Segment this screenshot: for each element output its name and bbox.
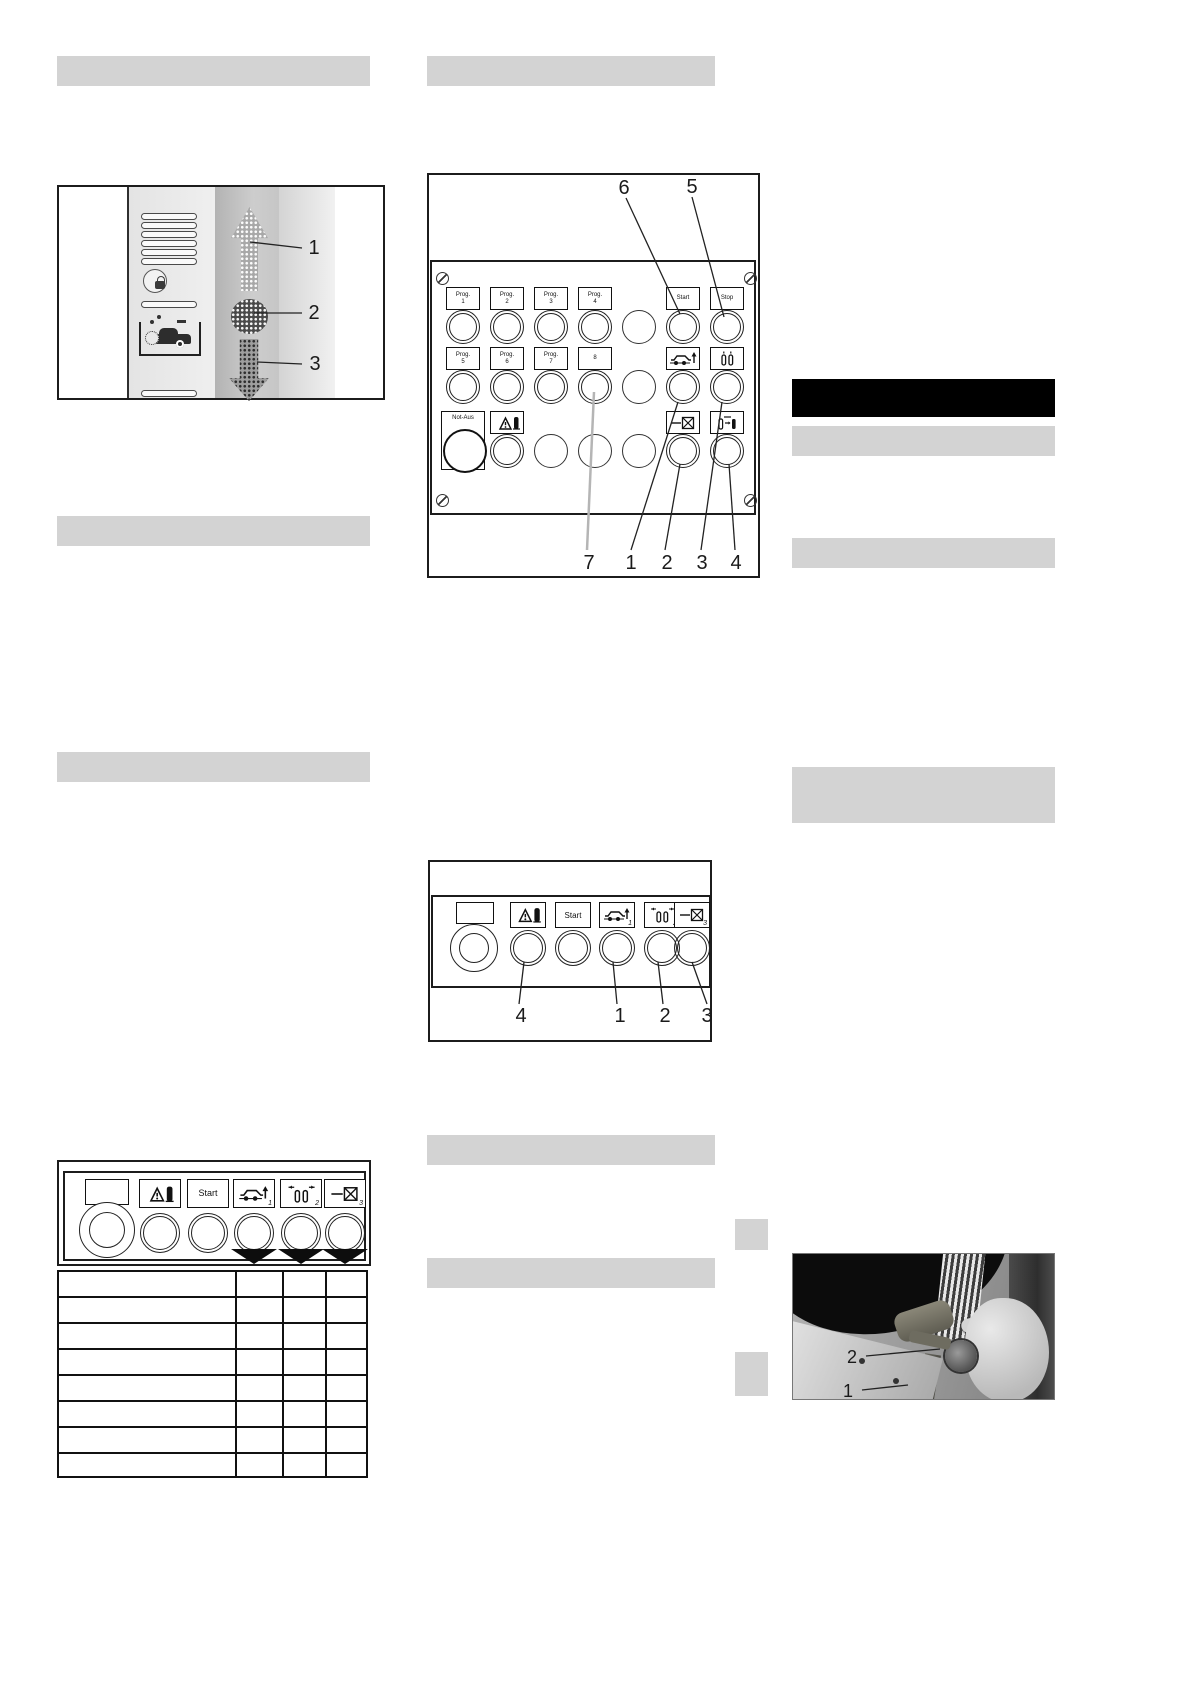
table-col-line [282, 1272, 284, 1476]
prog3-button [534, 310, 568, 344]
callout-1b: 1 [623, 553, 639, 573]
blank-button [578, 434, 612, 468]
wash-cancel-button [666, 434, 700, 468]
callout-2b: 2 [659, 553, 675, 573]
gantry-position-icon [710, 411, 744, 434]
warning-column-icon [490, 411, 524, 434]
start-label: Start [187, 1179, 229, 1208]
blank-button [622, 310, 656, 344]
vent-slot [141, 249, 197, 256]
callout-1: 1 [306, 238, 322, 258]
start-label: Start [666, 287, 700, 310]
wash-cancel-icon [666, 411, 700, 434]
prog6-button [490, 370, 524, 404]
car-raise-button [666, 370, 700, 404]
heading-bar-black [792, 379, 1055, 417]
heading-bar-mid-1 [427, 56, 715, 86]
wash-cancel-icon: 3 [674, 902, 710, 928]
screw-hole [893, 1378, 899, 1384]
car-wheel [176, 340, 184, 348]
droplet-icon [150, 320, 154, 324]
vent-slot [141, 390, 197, 397]
photo-callout-2: 2 [844, 1347, 860, 1367]
wash-cancel-icon: 3 [324, 1179, 366, 1208]
vent-slot [141, 258, 197, 265]
callout-2: 2 [306, 303, 322, 323]
table-row-line [59, 1452, 366, 1454]
vent-slot [141, 222, 197, 229]
heading-bar-right-2 [792, 538, 1055, 568]
callout-3: 3 [307, 354, 323, 374]
stop-button [710, 310, 744, 344]
start-button [555, 930, 591, 966]
table-col-line [325, 1272, 327, 1476]
margin-stub-2 [735, 1352, 768, 1396]
car-raise-icon: 1 [233, 1179, 275, 1208]
car-raise-button [599, 930, 635, 966]
gantry-pause-icon [710, 347, 744, 370]
table-row-line [59, 1322, 366, 1324]
start-label: Start [555, 902, 591, 928]
icon-subscript: 3 [703, 920, 707, 927]
prog8-button [578, 370, 612, 404]
blank-button [622, 370, 656, 404]
car-raise-button [234, 1213, 274, 1253]
callout-3b: 3 [694, 553, 710, 573]
icon-subscript: 2 [315, 1200, 319, 1207]
start-button [666, 310, 700, 344]
prog7-label: Prog.7 [534, 347, 568, 370]
wash-cancel-button [674, 930, 710, 966]
icon-subscript: 1 [268, 1200, 272, 1207]
car-raise-icon [666, 347, 700, 370]
prog8-label: 8 [578, 347, 612, 370]
heading-bar-mid-3 [427, 1258, 715, 1288]
prog1-label: Prog.1 [446, 287, 480, 310]
table-row-line [59, 1426, 366, 1428]
margin-stub-1 [735, 1219, 768, 1250]
heading-bar-mid-2 [427, 1135, 715, 1165]
prog4-label: Prog.4 [578, 287, 612, 310]
emergency-stop-button [443, 429, 487, 473]
key-switch-inner [459, 933, 489, 963]
callout-5: 5 [684, 177, 700, 197]
callout-1s: 1 [612, 1006, 628, 1026]
photo-callout-1: 1 [840, 1381, 856, 1401]
callout-7: 7 [581, 553, 597, 573]
stop-label: Stop [710, 287, 744, 310]
key-switch-label [456, 902, 494, 924]
card-slot [141, 301, 197, 308]
droplet-icon [157, 315, 161, 319]
table-col-line [235, 1272, 237, 1476]
car-raise-icon: 1 [599, 902, 635, 928]
photo-figure [792, 1253, 1055, 1400]
table-row-line [59, 1296, 366, 1298]
blank-button [534, 434, 568, 468]
blank-button [622, 434, 656, 468]
prog1-button [446, 310, 480, 344]
prog2-button [490, 310, 524, 344]
screw-icon [744, 272, 757, 285]
lock-shackle-icon [157, 276, 165, 283]
start-button [188, 1213, 228, 1253]
wash-cancel-button [325, 1213, 365, 1253]
callout-4s: 4 [513, 1006, 529, 1026]
icon-subscript: 3 [359, 1200, 363, 1207]
prog6-label: Prog.6 [490, 347, 524, 370]
prog5-label: Prog.5 [446, 347, 480, 370]
gantry-move-icon: 2 [280, 1179, 322, 1208]
table-row-line [59, 1374, 366, 1376]
prog3-label: Prog.3 [534, 287, 568, 310]
key-switch-inner [89, 1212, 125, 1248]
prog7-button [534, 370, 568, 404]
minus-mark [177, 320, 186, 323]
prog5-button [446, 370, 480, 404]
warning-button [490, 434, 524, 468]
screw-icon [436, 272, 449, 285]
screw-icon [744, 494, 757, 507]
vent-slot [141, 213, 197, 220]
heading-bar-right-3 [792, 767, 1055, 823]
table-row-line [59, 1348, 366, 1350]
screw-icon [436, 494, 449, 507]
figure-station-column [57, 185, 385, 400]
warning-column-icon [139, 1179, 181, 1208]
vent-slot [141, 231, 197, 238]
center-led-icon [231, 299, 268, 334]
program-table [57, 1270, 368, 1478]
car-roof [159, 328, 178, 337]
callout-6: 6 [616, 178, 632, 198]
vent-slot [141, 240, 197, 247]
warning-button [140, 1213, 180, 1253]
icon-subscript: 1 [628, 920, 632, 927]
table-row-line [59, 1400, 366, 1402]
car-wheel [145, 331, 159, 345]
heading-bar-left-1 [57, 56, 370, 86]
manual-page: 1 2 3 6 5 Prog.1 Prog.2 Prog.3 Prog.4 St… [0, 0, 1191, 1684]
warning-column-icon [510, 902, 546, 928]
callout-4b: 4 [728, 553, 744, 573]
prog2-label: Prog.2 [490, 287, 524, 310]
callout-3s: 3 [699, 1006, 715, 1026]
gantry-pause-button [710, 370, 744, 404]
heading-bar-left-2 [57, 516, 370, 546]
warning-button [510, 930, 546, 966]
gantry-move-button [281, 1213, 321, 1253]
heading-bar-left-3 [57, 752, 370, 782]
gantry-position-button [710, 434, 744, 468]
prog4-button [578, 310, 612, 344]
callout-2s: 2 [657, 1006, 673, 1026]
heading-bar-right-1 [792, 426, 1055, 456]
